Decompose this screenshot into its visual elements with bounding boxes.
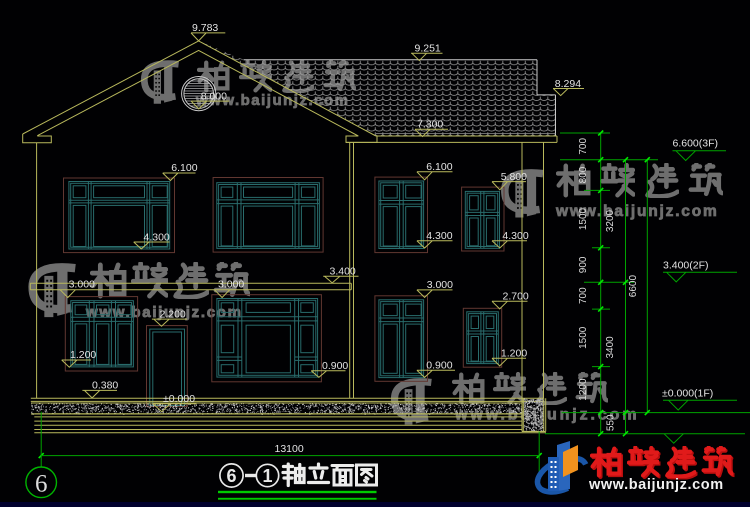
svg-text:1200: 1200 xyxy=(578,378,589,401)
svg-text:3.000: 3.000 xyxy=(427,279,453,291)
svg-text:www.baijunjz.com: www.baijunjz.com xyxy=(588,477,724,493)
svg-text:4.300: 4.300 xyxy=(502,230,528,242)
svg-text:6.100: 6.100 xyxy=(171,162,197,174)
svg-text:3.400: 3.400 xyxy=(330,266,356,278)
svg-text:800: 800 xyxy=(578,166,589,183)
svg-text:3.400(2F): 3.400(2F) xyxy=(663,260,709,272)
svg-text:0.380: 0.380 xyxy=(92,380,118,392)
svg-text:3.000: 3.000 xyxy=(69,279,95,291)
svg-text:2.700: 2.700 xyxy=(503,291,529,303)
svg-text:13100: 13100 xyxy=(275,443,304,455)
svg-text:±0.000(1F): ±0.000(1F) xyxy=(662,388,713,400)
svg-text:3.000: 3.000 xyxy=(218,279,244,291)
svg-text:7.300: 7.300 xyxy=(417,119,443,131)
svg-text:6: 6 xyxy=(35,471,48,498)
svg-text:3400: 3400 xyxy=(605,336,616,359)
svg-text:1.200: 1.200 xyxy=(70,349,96,361)
svg-text:9.783: 9.783 xyxy=(192,22,218,34)
svg-text:9.251: 9.251 xyxy=(415,42,441,54)
svg-text:1.200: 1.200 xyxy=(501,348,527,360)
svg-text:1500: 1500 xyxy=(578,207,589,230)
svg-text:6: 6 xyxy=(226,466,236,486)
svg-text:3200: 3200 xyxy=(605,209,616,232)
svg-text:6.100: 6.100 xyxy=(426,161,452,173)
svg-text:0.900: 0.900 xyxy=(426,360,452,372)
svg-text:6.600(3F): 6.600(3F) xyxy=(673,138,719,150)
svg-text:700: 700 xyxy=(578,287,589,304)
svg-text:1: 1 xyxy=(262,466,272,486)
svg-text:2.200: 2.200 xyxy=(160,308,186,320)
svg-text:0.900: 0.900 xyxy=(322,360,348,372)
svg-text:±0.000: ±0.000 xyxy=(163,393,195,405)
svg-text:6600: 6600 xyxy=(628,275,639,298)
svg-text:700: 700 xyxy=(578,138,589,155)
svg-text:900: 900 xyxy=(578,256,589,273)
svg-text:550: 550 xyxy=(606,414,617,431)
svg-text:8.000: 8.000 xyxy=(201,90,227,102)
svg-text:4.300: 4.300 xyxy=(144,231,170,243)
svg-text:5.800: 5.800 xyxy=(501,171,527,183)
svg-text:4.300: 4.300 xyxy=(426,230,452,242)
svg-text:8.294: 8.294 xyxy=(555,78,581,90)
svg-text:1500: 1500 xyxy=(578,326,589,349)
